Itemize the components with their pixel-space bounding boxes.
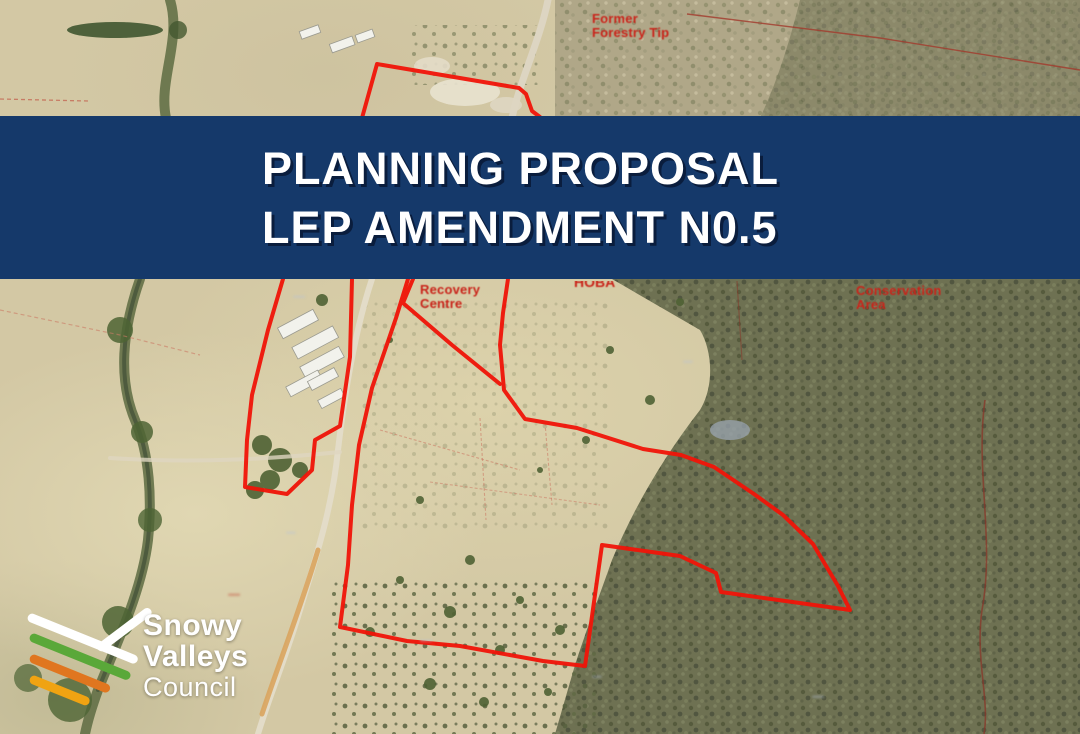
snowy-valleys-council-logo: Snowy Valleys Council (22, 598, 292, 718)
map-label-line: Area (856, 298, 941, 312)
council-logo-mark-icon (22, 598, 162, 708)
lot-label-smudge: ····· (293, 292, 305, 303)
map-label-recovery-centre: Recovery Centre (420, 283, 480, 311)
title-banner: PLANNING PROPOSAL LEP AMENDMENT N0.5 (0, 116, 1080, 279)
banner-title-line1: PLANNING PROPOSAL (262, 146, 1080, 191)
council-logo-text: Snowy Valleys Council (143, 610, 248, 702)
banner-title-line2: LEP AMENDMENT N0.5 (262, 205, 1080, 250)
map-label-clipped: HOBA (574, 281, 644, 291)
map-label-line: Former (592, 12, 669, 26)
terrain-forest-right (330, 279, 1080, 734)
logo-text-line3: Council (143, 672, 248, 702)
map-label-line: Conservation (856, 284, 941, 298)
logo-text-line1: Snowy (143, 610, 248, 641)
logo-text-line2: Valleys (143, 641, 248, 672)
map-label-line: Centre (420, 297, 480, 311)
lot-label-smudge: ···· (683, 357, 692, 368)
lot-label-smudge: ····· (812, 692, 824, 703)
map-label-line: Recovery (420, 283, 480, 297)
map-label-line: Forestry Tip (592, 26, 669, 40)
map-label-line: HOBA (574, 281, 644, 290)
planning-proposal-banner-image: ····· ···· ····· ···· ····· ···· Former … (0, 0, 1080, 734)
lot-label-smudge: ···· (592, 672, 601, 683)
map-label-former-forestry-tip: Former Forestry Tip (592, 12, 669, 40)
map-label-conservation-area: Conservation Area (856, 284, 941, 312)
lot-label-smudge: ···· (286, 528, 295, 539)
lot-label-smudge: ····· (420, 636, 432, 647)
